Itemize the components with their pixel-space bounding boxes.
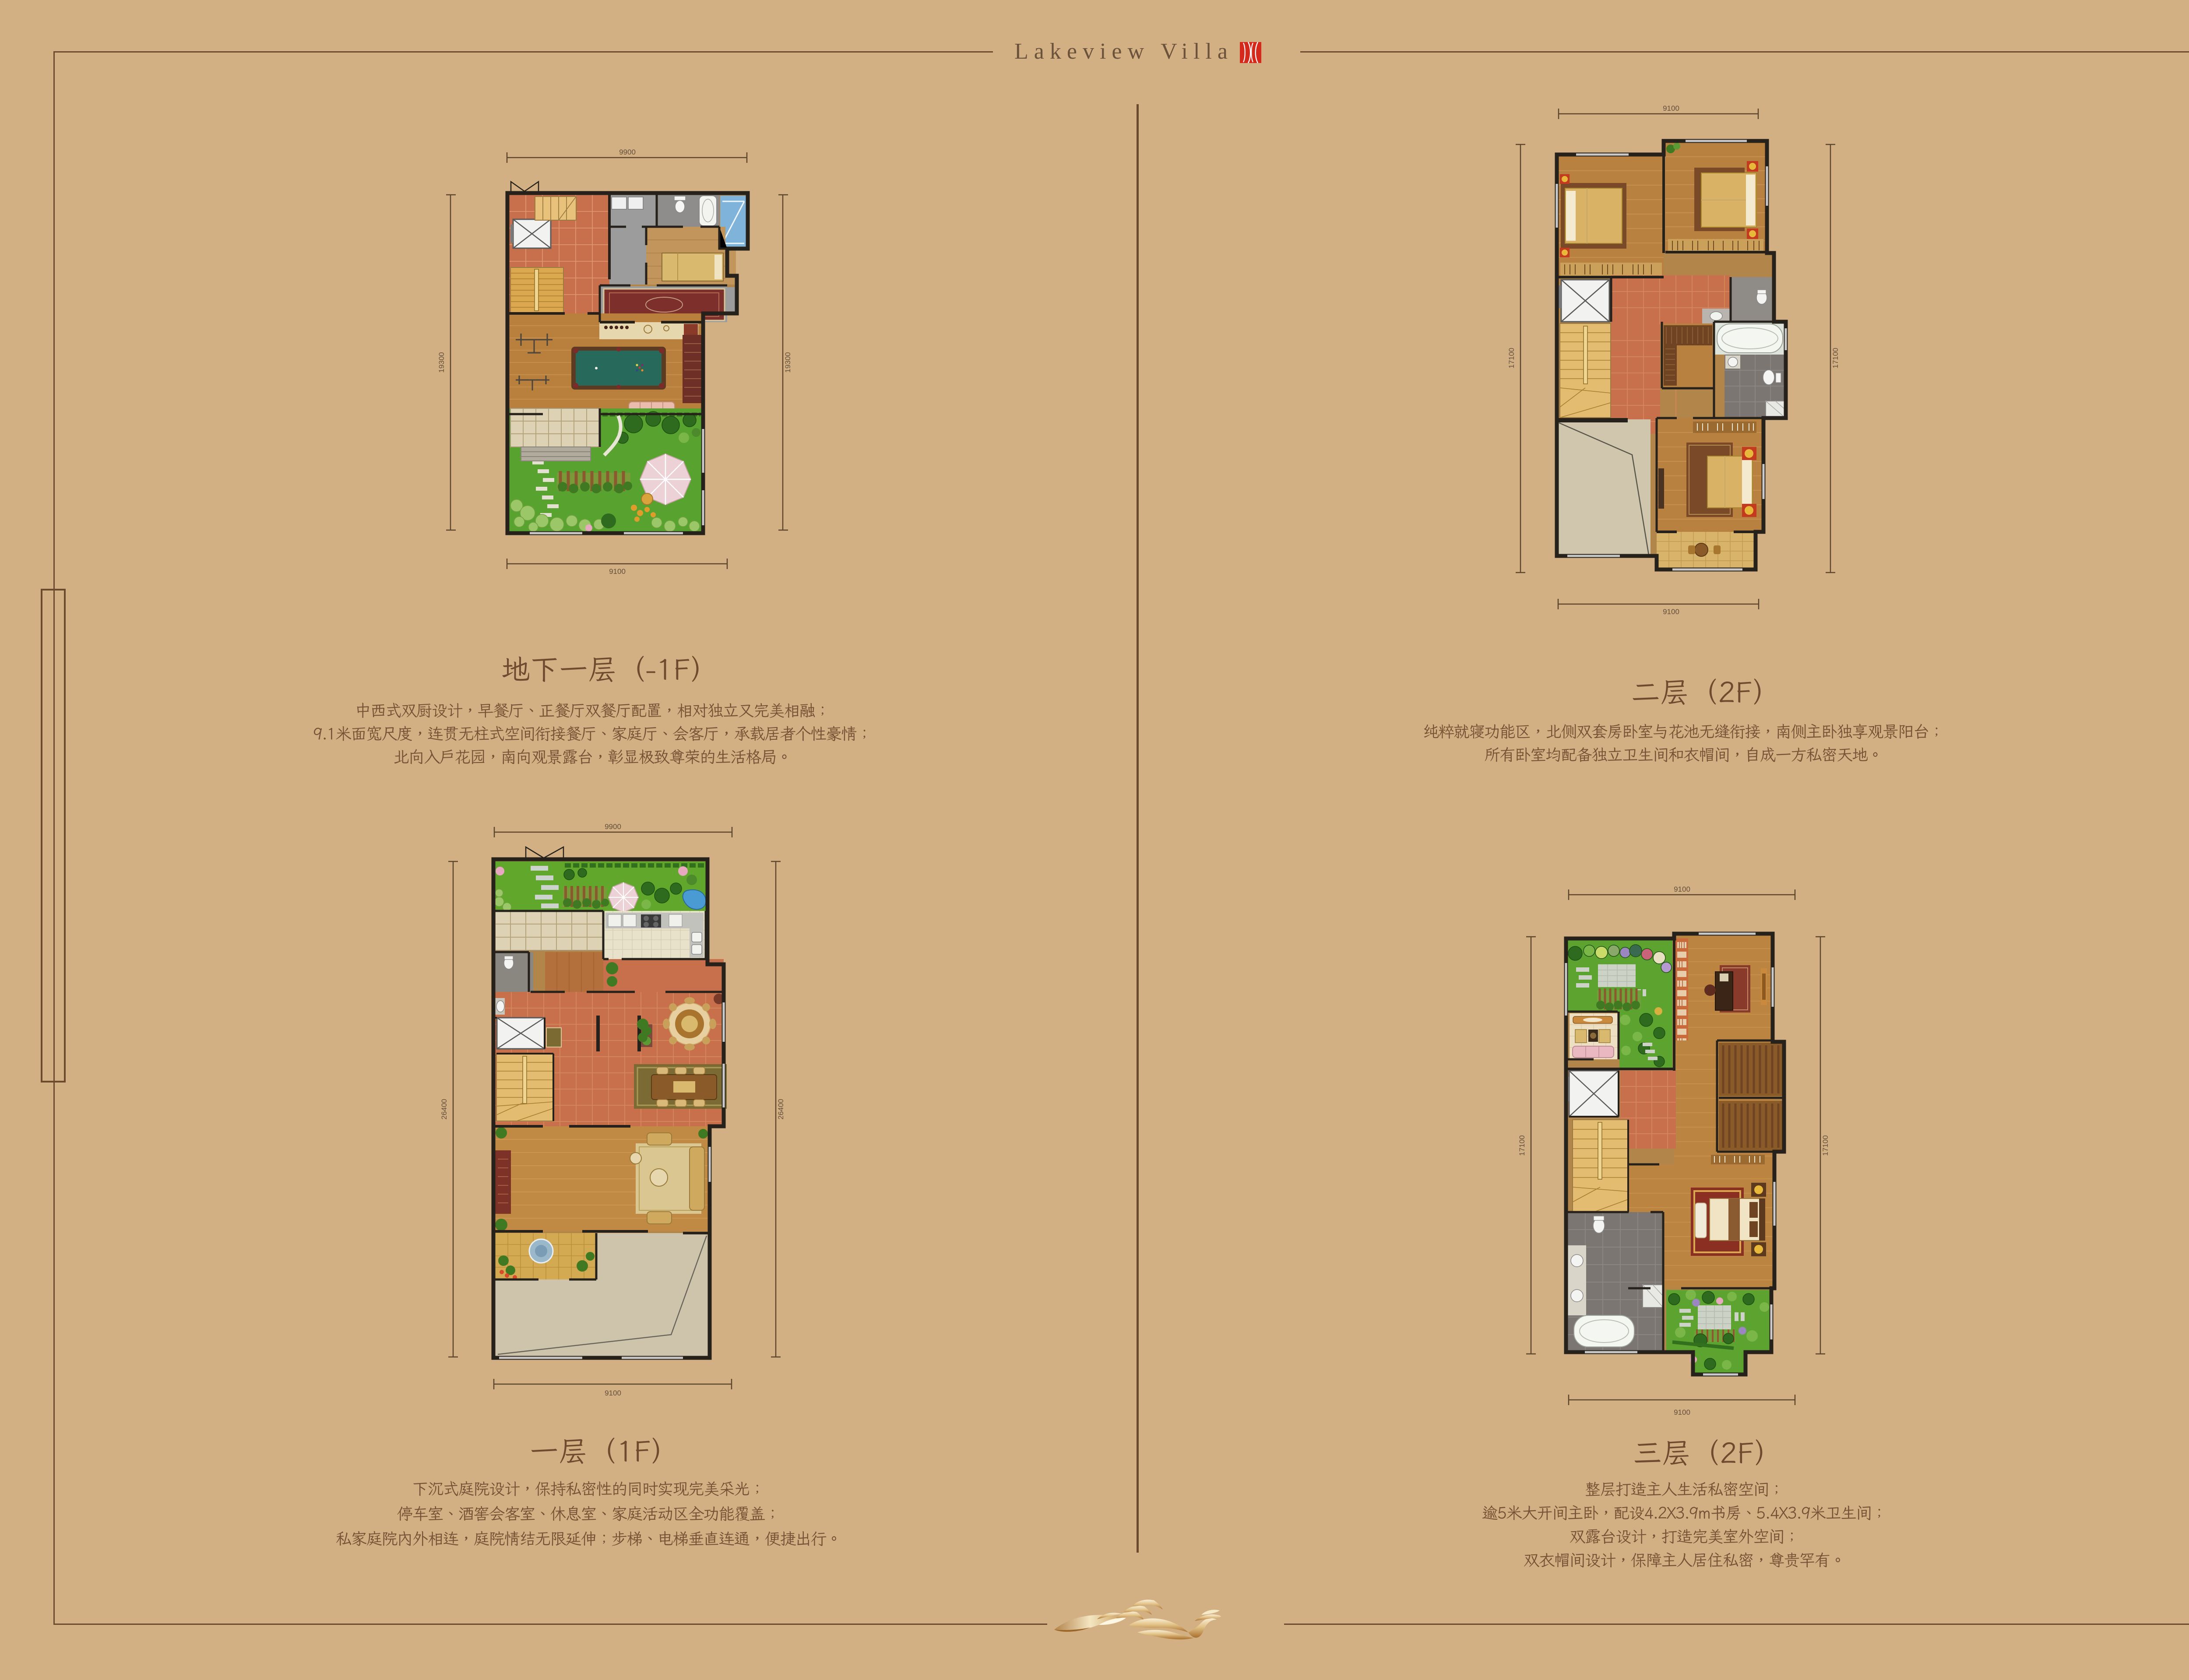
svg-text:19300: 19300 — [784, 352, 792, 373]
svg-text:9100: 9100 — [1674, 885, 1690, 893]
svg-text:9100: 9100 — [1663, 104, 1679, 112]
svg-text:9900: 9900 — [619, 148, 636, 156]
svg-text:17100: 17100 — [1507, 348, 1516, 368]
svg-text:9900: 9900 — [605, 822, 621, 831]
svg-text:26400: 26400 — [440, 1099, 448, 1119]
svg-text:9100: 9100 — [1663, 608, 1679, 616]
svg-text:19300: 19300 — [437, 352, 446, 373]
svg-text:17100: 17100 — [1831, 348, 1840, 368]
svg-text:17100: 17100 — [1518, 1135, 1526, 1156]
svg-text:9100: 9100 — [605, 1389, 621, 1397]
svg-text:17100: 17100 — [1821, 1135, 1830, 1156]
svg-text:9100: 9100 — [1674, 1408, 1690, 1416]
svg-text:26400: 26400 — [777, 1099, 785, 1119]
svg-text:9100: 9100 — [609, 567, 626, 576]
